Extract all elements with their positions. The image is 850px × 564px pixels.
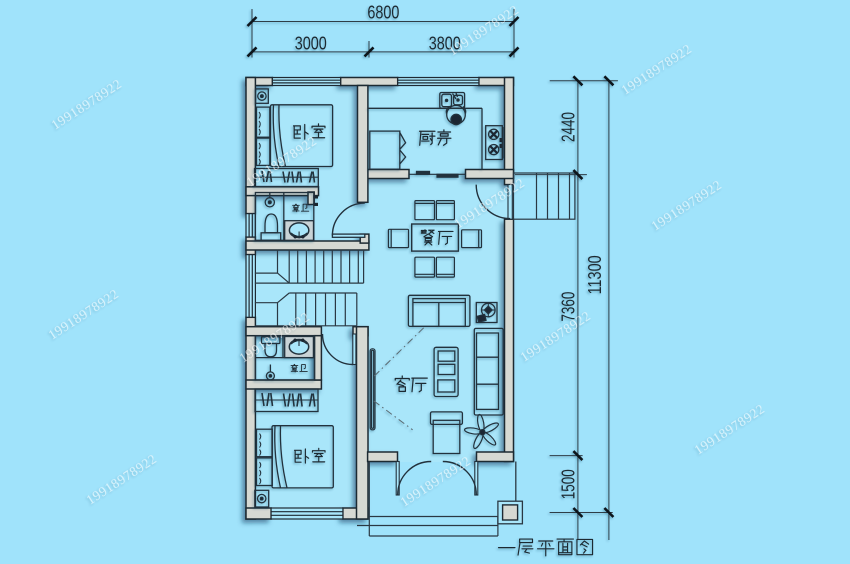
svg-text:2440: 2440: [558, 112, 579, 142]
svg-text:6800: 6800: [367, 2, 399, 23]
svg-text:3000: 3000: [295, 32, 327, 53]
svg-text:1500: 1500: [558, 469, 579, 499]
svg-text:11300: 11300: [584, 255, 605, 294]
